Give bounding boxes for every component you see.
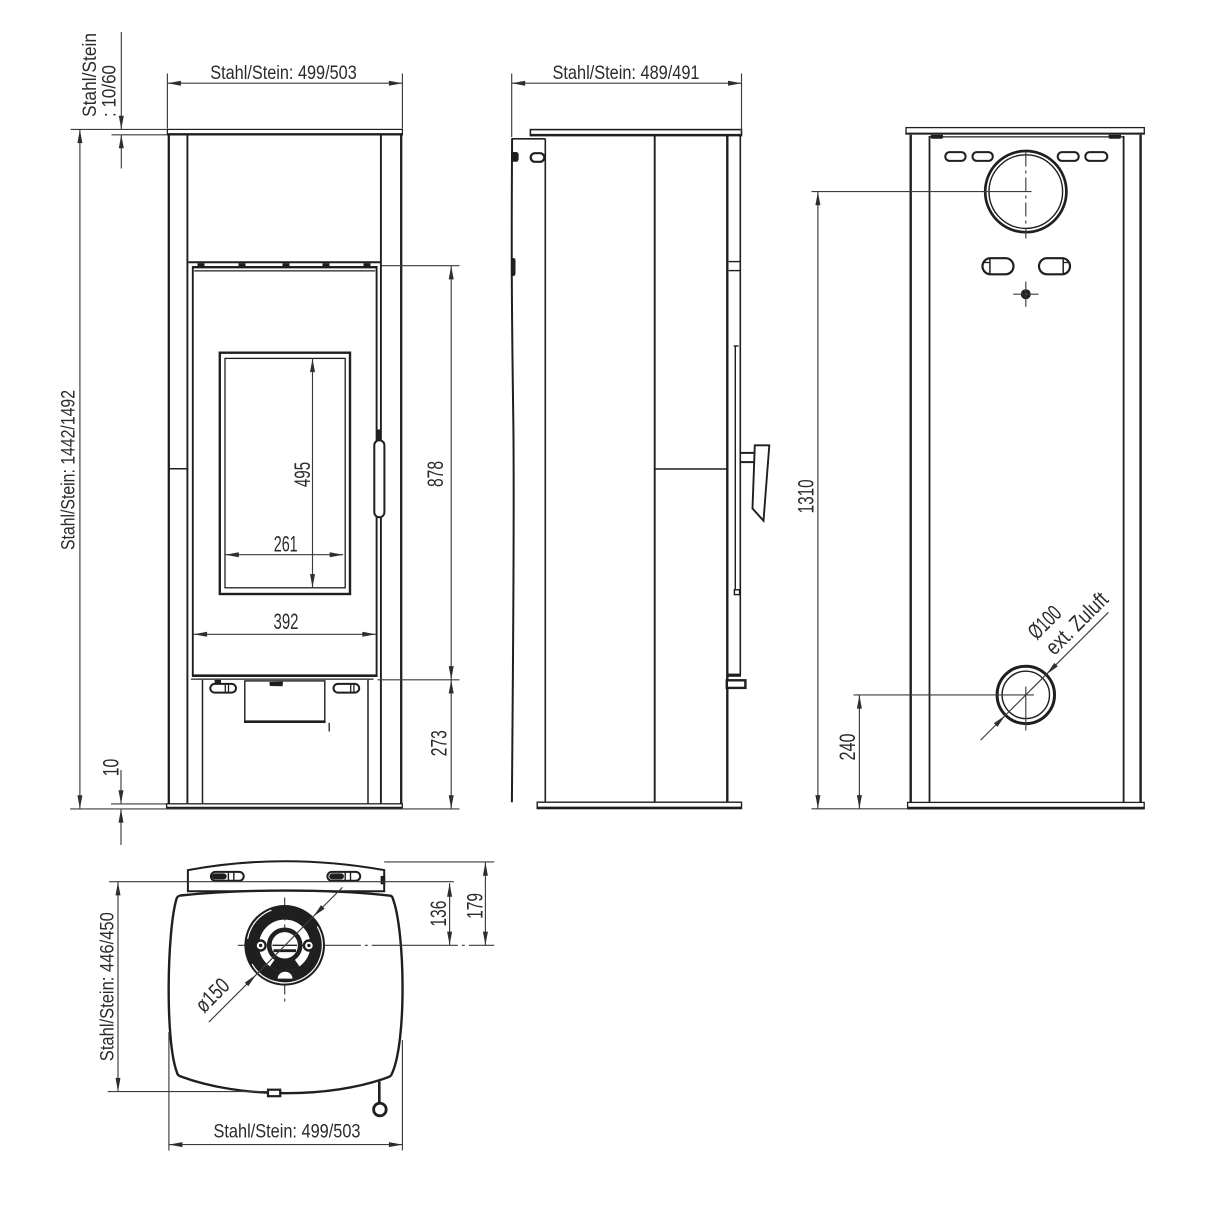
svg-text:392: 392 xyxy=(274,609,299,634)
svg-text:878: 878 xyxy=(423,461,448,487)
svg-text:Stahl/Stein: 1442/1492: Stahl/Stein: 1442/1492 xyxy=(58,390,80,550)
svg-text:Stahl/Stein: 446/450: Stahl/Stein: 446/450 xyxy=(96,912,118,1061)
svg-text:179: 179 xyxy=(462,893,487,919)
svg-text:Stahl/Stein: 499/503: Stahl/Stein: 499/503 xyxy=(214,1120,361,1142)
svg-text:273: 273 xyxy=(427,730,452,756)
svg-text:Stahl/Stein: 489/491: Stahl/Stein: 489/491 xyxy=(553,62,700,84)
svg-text:136: 136 xyxy=(426,901,451,927)
svg-text:10: 10 xyxy=(98,759,123,777)
svg-text:240: 240 xyxy=(835,734,860,761)
svg-text:1310: 1310 xyxy=(793,479,818,513)
svg-text:495: 495 xyxy=(290,462,315,487)
svg-text:Stahl/Stein: 499/503: Stahl/Stein: 499/503 xyxy=(210,62,357,84)
svg-text:261: 261 xyxy=(274,532,298,557)
svg-text:: 10/60: : 10/60 xyxy=(99,65,121,117)
